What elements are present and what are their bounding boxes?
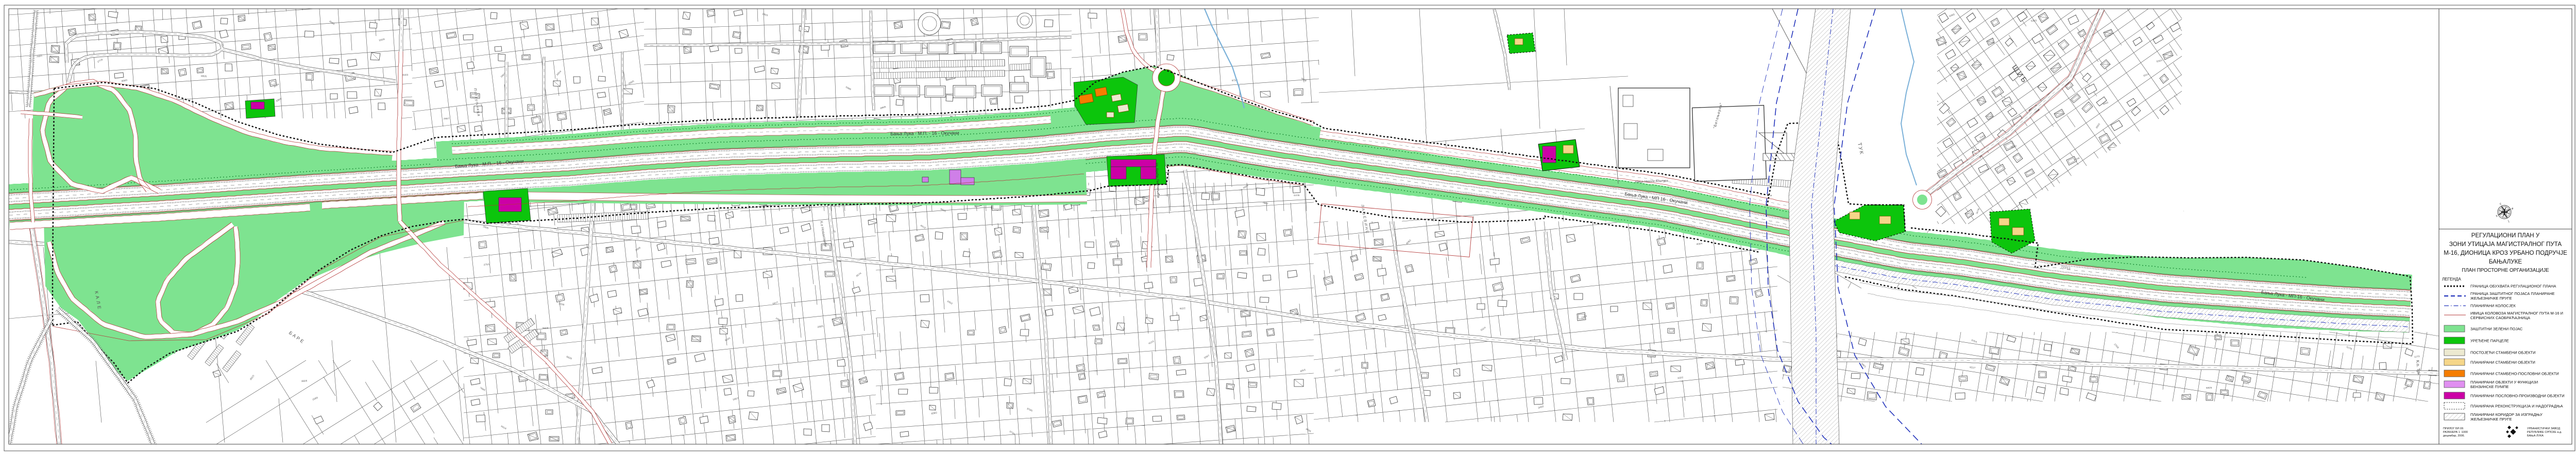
svg-text:РАЗМЈЕРА 1 :1000: РАЗМЈЕРА 1 :1000 <box>2443 431 2468 434</box>
svg-text:ЖЕЉЕЗНИЧКЕ ПРУГЕ: ЖЕЉЕЗНИЧКЕ ПРУГЕ <box>2470 296 2512 301</box>
svg-text:ПОСТОЈЕЋИ СТАМБЕНИ ОБЈЕКТИ: ПОСТОЈЕЋИ СТАМБЕНИ ОБЈЕКТИ <box>2470 351 2536 355</box>
svg-text:УРЕЂЕНЕ ПАРЦЕЛЕ: УРЕЂЕНЕ ПАРЦЕЛЕ <box>2470 339 2509 343</box>
svg-text:ПЛАНИРАНИ КОЛОСЈЕК: ПЛАНИРАНИ КОЛОСЈЕК <box>2470 304 2516 308</box>
svg-text:ПЛАНИРАНИ СТАМБЕНО-ПОСЛОВНИ ОБ: ПЛАНИРАНИ СТАМБЕНО-ПОСЛОВНИ ОБЈЕКТИ <box>2470 372 2559 376</box>
svg-text:ГРАНИЦА ЗАШТИТНОГ ПОЈАСА ПЛАНИ: ГРАНИЦА ЗАШТИТНОГ ПОЈАСА ПЛАНИРАНЕ <box>2470 291 2555 296</box>
svg-text:ГРАНИЦА ОБУХВАТА РЕГУЛАЦИОНОГ: ГРАНИЦА ОБУХВАТА РЕГУЛАЦИОНОГ ПЛАНА <box>2470 284 2556 289</box>
svg-text:Бања Лука - М.П. - 16 - Окучан: Бања Лука - М.П. - 16 - Окучани <box>890 130 959 136</box>
svg-text:447/8: 447/8 <box>1294 194 1300 197</box>
svg-text:М-16, ДИОНИЦА КРОЗ УРБАНО ПОДР: М-16, ДИОНИЦА КРОЗ УРБАНО ПОДРУЧЈЕ <box>2444 250 2567 256</box>
svg-text:УРБАНИСТИЧКИ ЗАВОД: УРБАНИСТИЧКИ ЗАВОД <box>2527 427 2560 430</box>
svg-text:ПЛАНИРАНИ СТАМБЕНИ ОБЈЕКТИ: ПЛАНИРАНИ СТАМБЕНИ ОБЈЕКТИ <box>2470 360 2535 365</box>
svg-text:РЕГУЛАЦИОНИ ПЛАН У: РЕГУЛАЦИОНИ ПЛАН У <box>2471 232 2540 239</box>
svg-text:299/7: 299/7 <box>444 117 450 120</box>
svg-text:ПЛАНИРАНИ КОРИДОР ЗА ИЗГРАДЊУ: ПЛАНИРАНИ КОРИДОР ЗА ИЗГРАДЊУ <box>2470 412 2543 417</box>
svg-text:ПЛАНИРАНИ ПОСЛОВНО-ПРОИЗВОДНИ: ПЛАНИРАНИ ПОСЛОВНО-ПРОИЗВОДНИ ОБЈЕКТИ <box>2470 394 2565 398</box>
svg-text:418/3: 418/3 <box>402 74 409 76</box>
svg-text:ЖЕЉЕЗНИЧКЕ ПРУГЕ: ЖЕЉЕЗНИЧКЕ ПРУГЕ <box>2470 417 2512 422</box>
svg-text:РЕПУБЛИКЕ СРПСКЕ а.д.: РЕПУБЛИКЕ СРПСКЕ а.д. <box>2527 431 2562 434</box>
svg-text:децембар, 2006.: децембар, 2006. <box>2443 434 2465 437</box>
svg-text:968/9: 968/9 <box>543 327 549 329</box>
svg-text:БЕНЗИНСКЕ ПУМПЕ: БЕНЗИНСКЕ ПУМПЕ <box>2470 384 2509 389</box>
svg-text:СЕРВИСНИХ САОБРАЋАЈНИЦА: СЕРВИСНИХ САОБРАЋАЈНИЦА <box>2470 316 2530 320</box>
svg-text:ПЛАН ПРОСТОРНЕ ОРГАНИЗАЦИЈЕ: ПЛАН ПРОСТОРНЕ ОРГАНИЗАЦИЈЕ <box>2462 268 2549 273</box>
svg-text:ПЛАНИРАНА РЕКОНСТРУКЦИЈА И НАД: ПЛАНИРАНА РЕКОНСТРУКЦИЈА И НАДОГРАДЊА <box>2470 404 2563 409</box>
svg-text:ЛЕГЕНДА: ЛЕГЕНДА <box>2442 277 2461 282</box>
svg-text:ЗАШТИТНИ ЗЕЛЕНИ ПОЈАС: ЗАШТИТНИ ЗЕЛЕНИ ПОЈАС <box>2470 327 2523 331</box>
svg-text:530/3: 530/3 <box>2031 19 2037 22</box>
svg-text:ЗОНИ УТИЦАЈА МАГИСТРАЛНОГ ПУТА: ЗОНИ УТИЦАЈА МАГИСТРАЛНОГ ПУТА <box>2449 241 2562 248</box>
svg-text:БАЊА ЛУКА: БАЊА ЛУКА <box>2527 434 2544 437</box>
svg-text:680/5: 680/5 <box>201 75 207 78</box>
svg-text:БАЊАЛУКЕ: БАЊАЛУКЕ <box>2489 258 2522 265</box>
svg-text:680/9: 680/9 <box>2206 387 2212 389</box>
svg-text:ПРИЛОГ БР.:06: ПРИЛОГ БР.:06 <box>2443 427 2463 430</box>
svg-text:ПЛАНИРАНИ ОБЈЕКТИ У ФУНКЦИЈИ: ПЛАНИРАНИ ОБЈЕКТИ У ФУНКЦИЈИ <box>2470 380 2538 384</box>
svg-text:360/6: 360/6 <box>301 379 308 382</box>
svg-text:ИВИЦА КОЛОВОЗА МАГИСТРАЛНОГ ПУ: ИВИЦА КОЛОВОЗА МАГИСТРАЛНОГ ПУТА М-16 И <box>2470 311 2563 316</box>
svg-text:611/2: 611/2 <box>1180 307 1186 310</box>
